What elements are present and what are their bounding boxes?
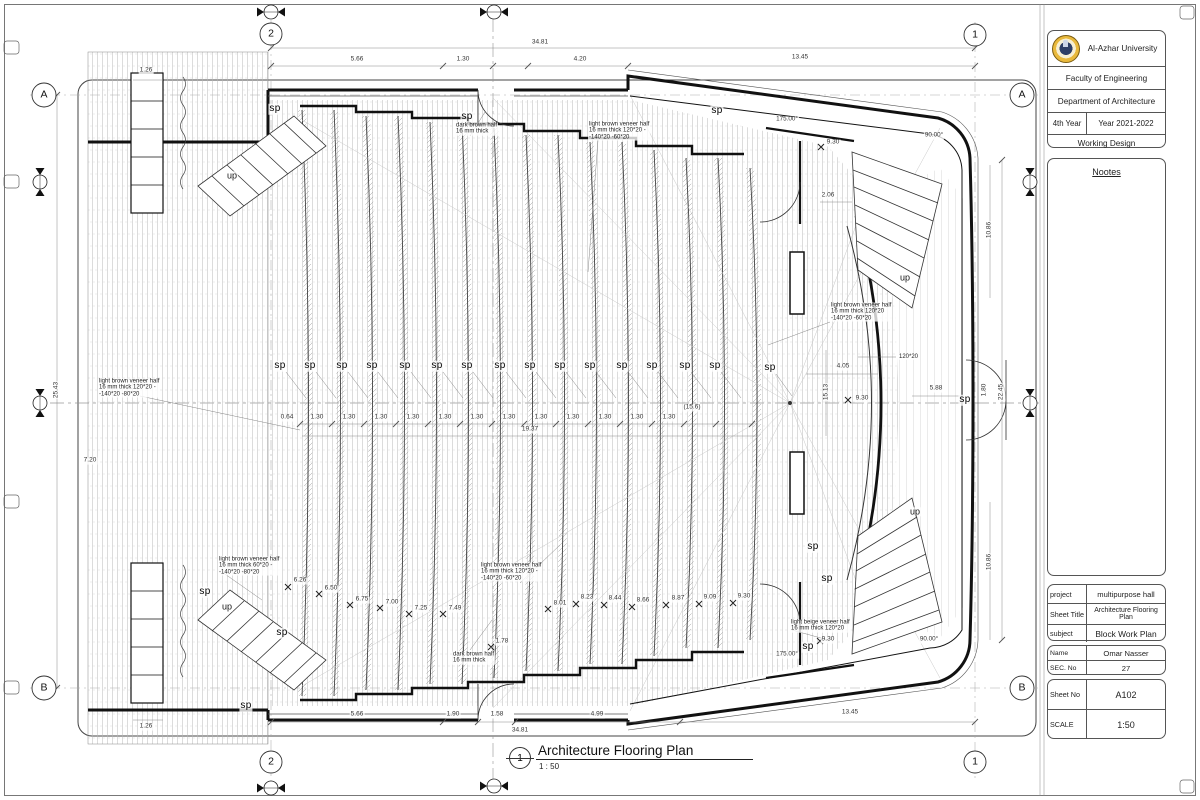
university-logo-icon	[1052, 35, 1080, 63]
view-number: 1	[517, 753, 523, 764]
seating-rows	[302, 110, 757, 696]
sheet-no-value: A102	[1087, 680, 1165, 709]
subject-value: Block Work Plan	[1087, 625, 1165, 642]
university-name: Al-Azhar University	[1084, 44, 1161, 53]
scale-value: 1:50	[1087, 710, 1165, 739]
view-scale-text: 1 : 50	[536, 760, 753, 771]
view-title-text: Architecture Flooring Plan	[536, 743, 753, 760]
design-type: Working Design	[1048, 135, 1165, 151]
notes-panel: Nootes	[1047, 158, 1166, 576]
sheet-number-table: Sheet No A102 SCALE 1:50	[1047, 679, 1166, 739]
section-value: 27	[1087, 661, 1165, 675]
academic-year: Year 2021-2022	[1087, 113, 1165, 134]
project-value: multipurpose hall	[1087, 585, 1165, 603]
view-title: 1 Architecture Flooring Plan 1 : 50	[509, 743, 753, 771]
name-value: Omar Nasser	[1087, 646, 1165, 660]
author-table: Name Omar Nasser SEC. No 27	[1047, 645, 1166, 675]
project-info-table: project multipurpose hall Sheet Title Ar…	[1047, 584, 1166, 641]
sheet-no-label: Sheet No	[1048, 680, 1087, 709]
year-label: 4th Year	[1048, 113, 1087, 134]
project-label: project	[1048, 585, 1087, 603]
scale-label: SCALE	[1048, 710, 1087, 739]
section-label: SEC. No	[1048, 661, 1087, 675]
notes-title: Nootes	[1048, 167, 1165, 177]
floor-plan-drawing	[0, 0, 1200, 800]
drawing-sheet: 2121ABAB34.815.661.304.2013.4534.815.661…	[0, 0, 1200, 800]
subject-label: subject	[1048, 625, 1087, 642]
name-label: Name	[1048, 646, 1087, 660]
titleblock-university: Al-Azhar University Faculty of Engineeri…	[1047, 30, 1166, 148]
view-number-badge: 1	[509, 747, 531, 769]
faculty-name: Faculty of Engineering	[1048, 67, 1165, 90]
sheet-title-label: Sheet Title	[1048, 604, 1087, 624]
sheet-title-value: Architecture Flooring Plan	[1087, 604, 1165, 624]
department-name: Department of Architecture	[1048, 90, 1165, 113]
